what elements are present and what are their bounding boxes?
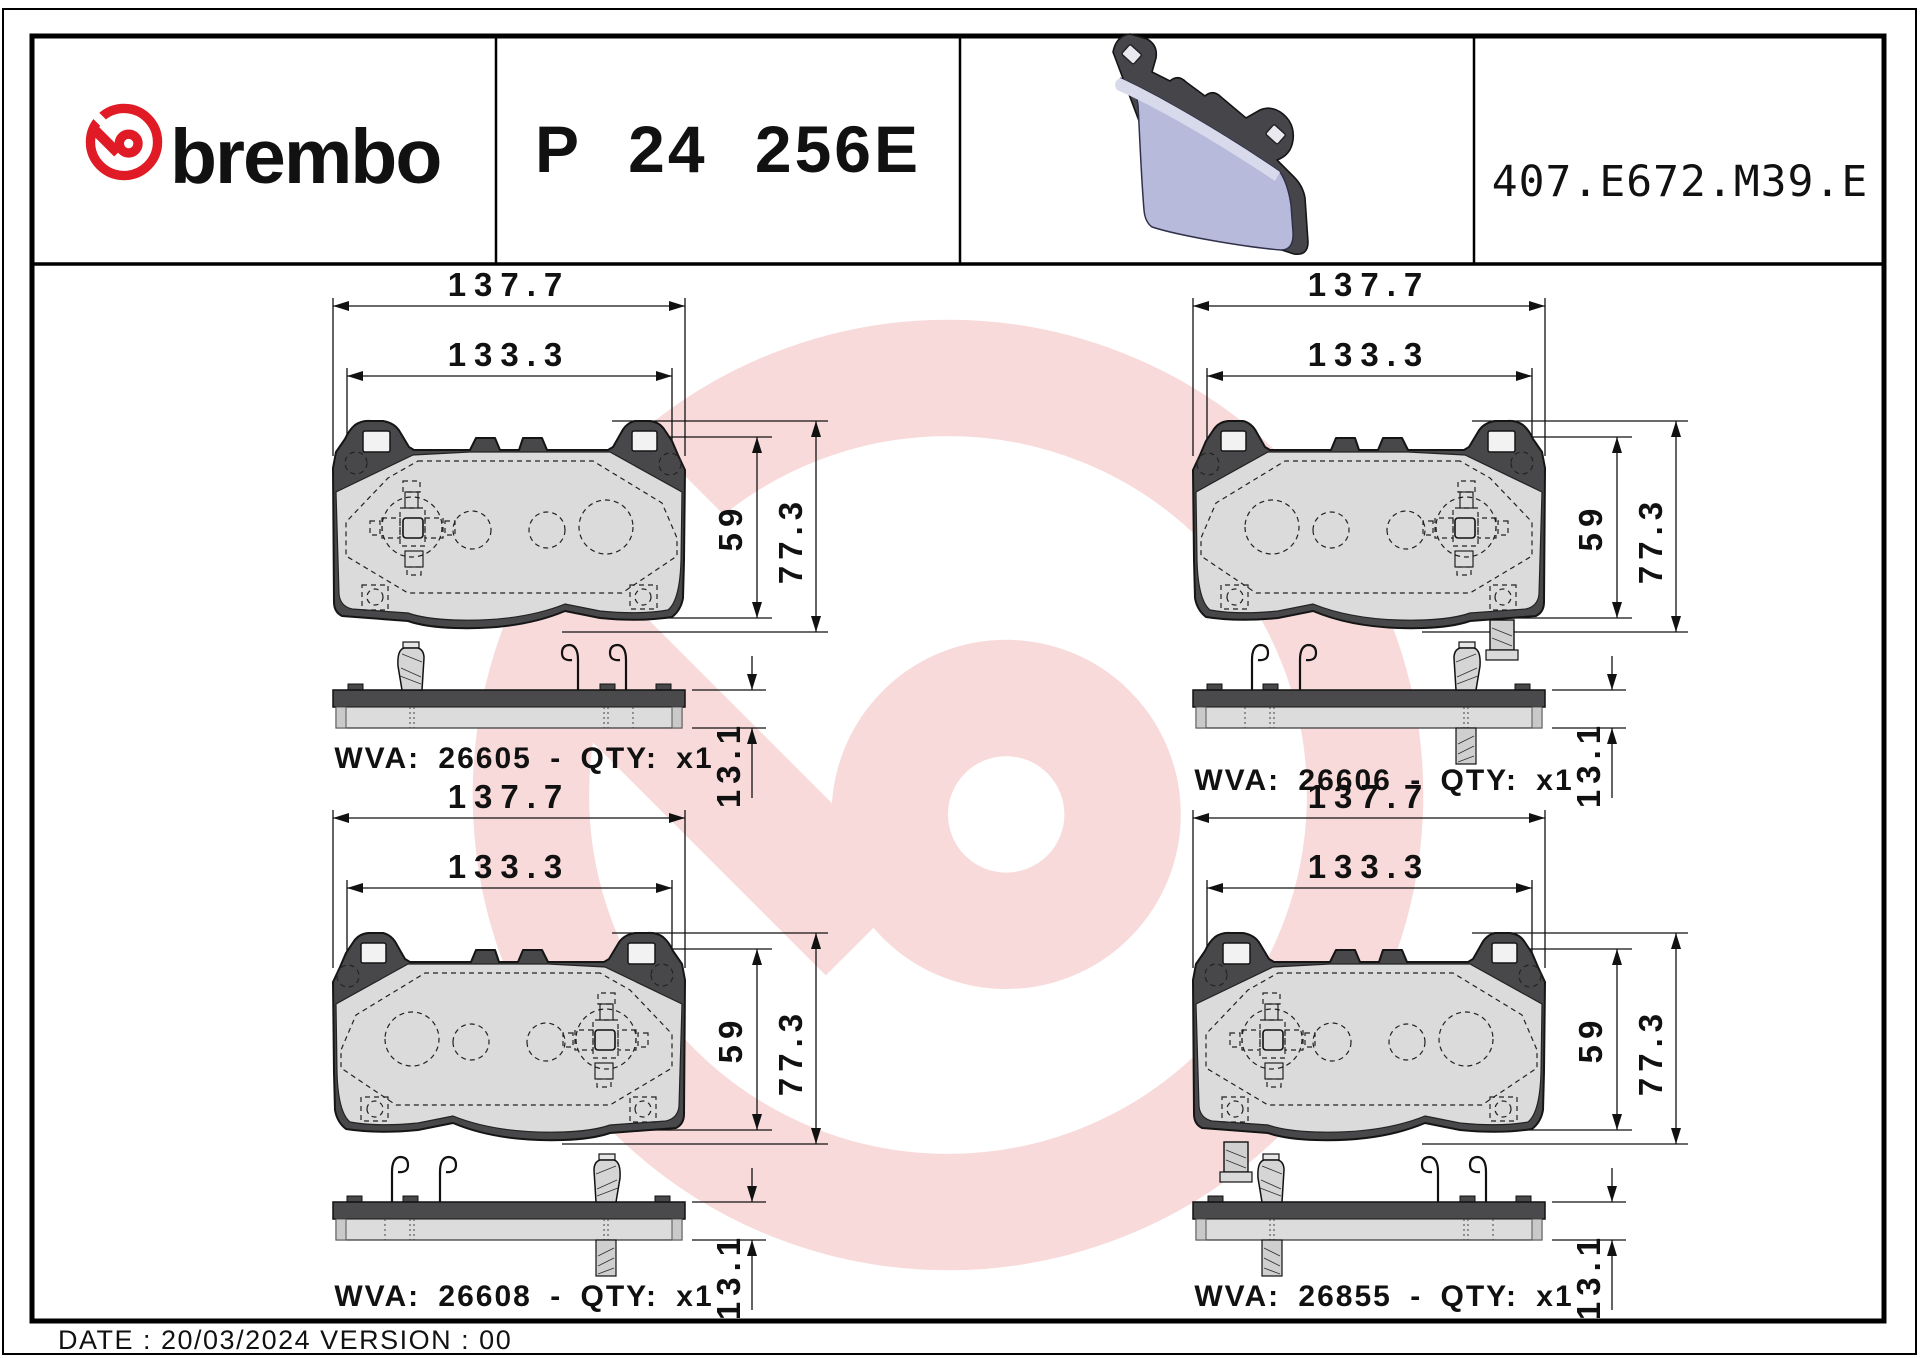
dim-overall-width-label: 137.7: [1308, 778, 1431, 815]
dim-overall-height-label: 77.3: [1632, 496, 1669, 584]
datasheet-page: brembo P 24 256E 407.E672.M39.E 137.7 13…: [0, 0, 1920, 1358]
dim-overall-height-label: 77.3: [772, 496, 809, 584]
dim-overall-width-label: 137.7: [1308, 266, 1431, 303]
dim-overall-width-label: 137.7: [448, 266, 571, 303]
pad-front-view: [1193, 933, 1545, 1140]
wva-label: WVA: 26605 - QTY: x1: [334, 742, 713, 775]
brembo-wordmark: brembo: [170, 114, 440, 200]
brembo-logo-mark-icon: [90, 108, 158, 175]
dim-pad-height-label: 59: [712, 503, 749, 552]
pad-front-view: [1193, 421, 1545, 628]
dim-overall-height-label: 77.3: [1632, 1008, 1669, 1096]
quadrant-top-right: 137.7 133.3 59 77.3 13.1 WVA: 26606 - QT…: [1193, 266, 1688, 808]
brembo-logo: brembo: [90, 108, 441, 200]
wear-sensor-tab: [1220, 1142, 1252, 1182]
dim-overall-height-label: 77.3: [772, 1008, 809, 1096]
dim-pad-height-label: 59: [712, 1015, 749, 1064]
part-number: P 24 256E: [535, 112, 921, 186]
pad-front-view: [333, 421, 685, 628]
dim-pad-width-label: 133.3: [1308, 848, 1431, 885]
wva-label: WVA: 26608 - QTY: x1: [334, 1280, 713, 1313]
wear-sensor-tab: [1486, 620, 1518, 660]
reference-code: 407.E672.M39.E: [1492, 157, 1868, 207]
dim-pad-width-label: 133.3: [1308, 336, 1431, 373]
quadrant-bottom-right: 137.7 133.3 59 77.3 13.1 WVA: 26855 - QT…: [1193, 778, 1688, 1320]
dim-thickness-label: 13.1: [710, 720, 747, 808]
brake-pad-3d-render: [1113, 34, 1308, 254]
pad-side-view: [333, 1154, 685, 1276]
dim-pad-height-label: 59: [1572, 503, 1609, 552]
dim-pad-width-label: 133.3: [448, 336, 571, 373]
dim-pad-height-label: 59: [1572, 1015, 1609, 1064]
dim-thickness-label: 13.1: [1570, 720, 1607, 808]
technical-drawing-sheet: brembo P 24 256E 407.E672.M39.E 137.7 13…: [0, 0, 1920, 1358]
dim-pad-width-label: 133.3: [448, 848, 571, 885]
dim-thickness-label: 13.1: [710, 1232, 747, 1320]
dim-thickness-label: 13.1: [1570, 1232, 1607, 1320]
date-version-line: DATE : 20/03/2024 VERSION : 00: [58, 1325, 512, 1355]
pad-front-view: [333, 933, 685, 1140]
dim-overall-width-label: 137.7: [448, 778, 571, 815]
wva-label: WVA: 26855 - QTY: x1: [1194, 1280, 1573, 1313]
